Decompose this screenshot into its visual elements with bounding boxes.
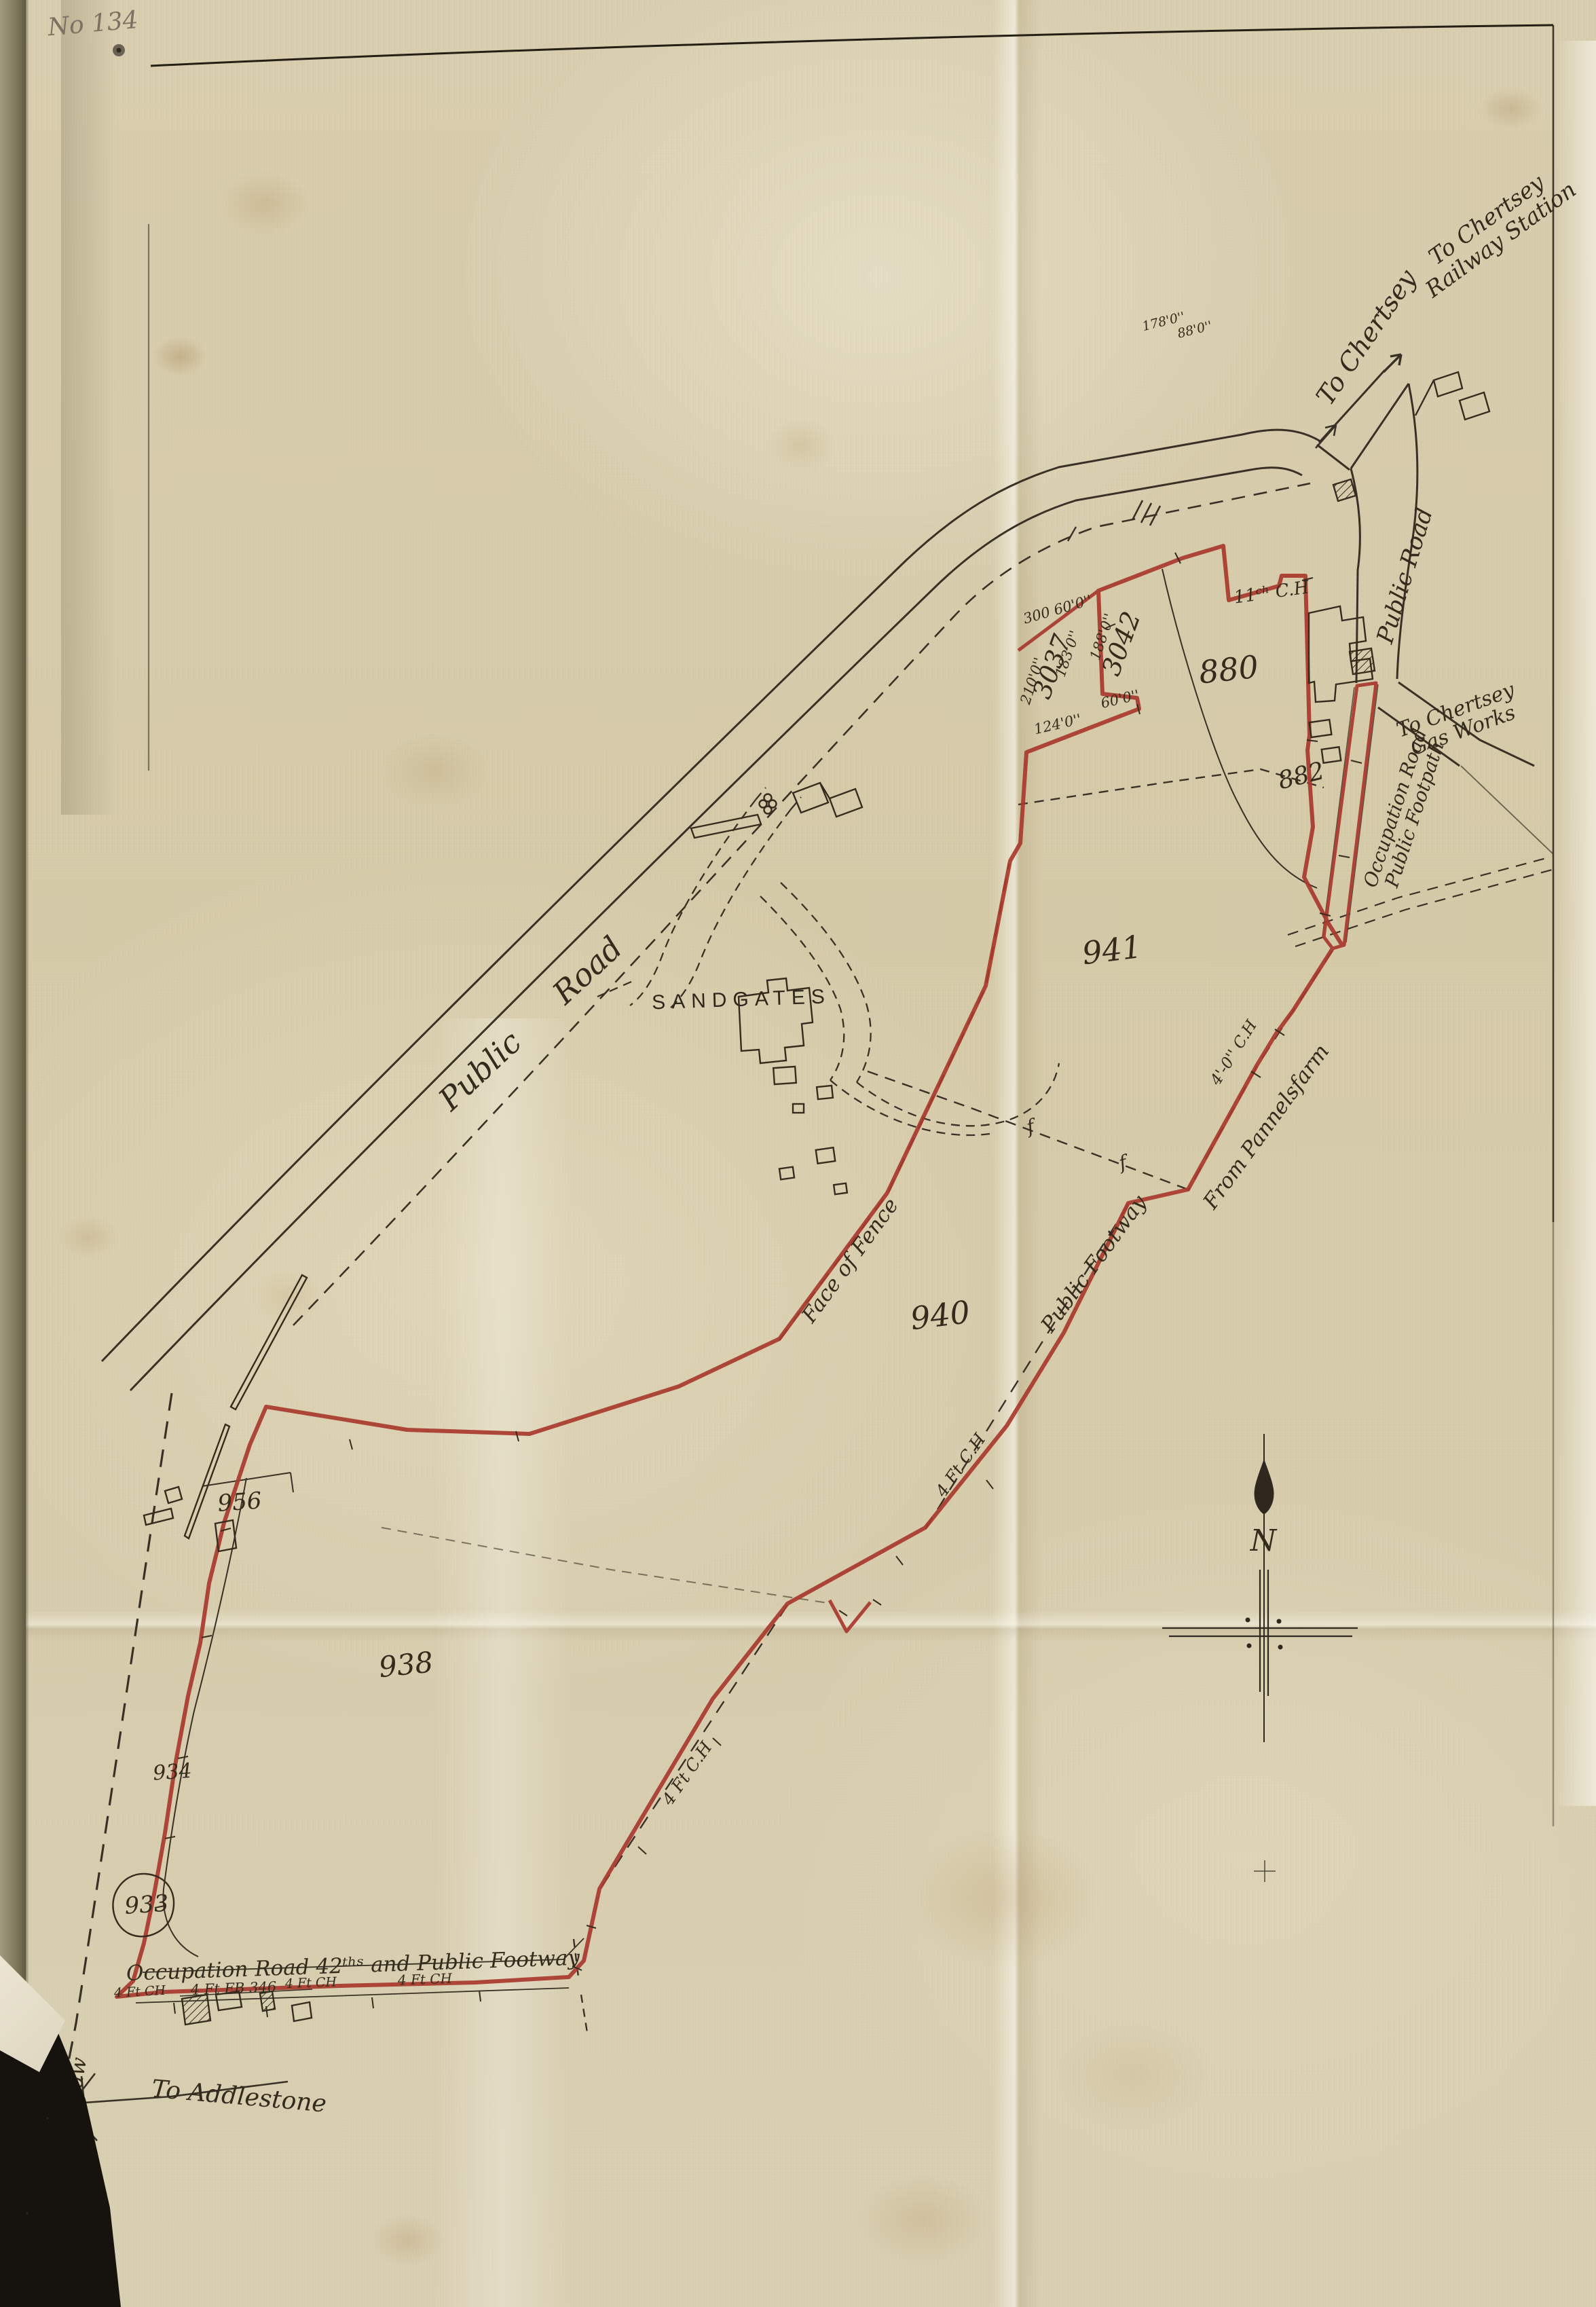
plot-label-940: 940 — [908, 1295, 971, 1336]
north-arrow-icon — [1255, 1460, 1274, 1514]
compass-north-letter: N — [1250, 1525, 1277, 1557]
map-sheet: No 134 To Chertsey To Chertsey Railway S… — [0, 0, 1596, 2307]
survey-ticks — [155, 553, 1362, 2017]
compass-rose — [1162, 1434, 1358, 1882]
border-frame — [113, 25, 1553, 1826]
plot-label-933: 933 — [124, 1891, 169, 1919]
dim-4ftch-3: 4 Ft CH — [398, 1972, 453, 1988]
road-linework — [68, 354, 1553, 2141]
red-boundary — [117, 546, 1376, 1997]
dashed-paths — [42, 483, 1555, 2196]
plot-label-880: 880 — [1198, 650, 1261, 690]
small-cross-mark — [1254, 1860, 1276, 1882]
plot-label-938: 938 — [377, 1646, 434, 1682]
buildings — [113, 372, 1489, 2025]
plot-label-941: 941 — [1080, 930, 1143, 971]
plot-label-956: 956 — [217, 1488, 262, 1516]
dim-4ftch-2: 4 Ft CH — [285, 1975, 337, 1991]
dim-4ftfb-346: 4 Ft FB 346 — [190, 1979, 276, 1997]
dim-4ftch-1: 4 Ft CH — [113, 1984, 166, 2000]
plot-label-934: 934 — [152, 1760, 192, 1785]
